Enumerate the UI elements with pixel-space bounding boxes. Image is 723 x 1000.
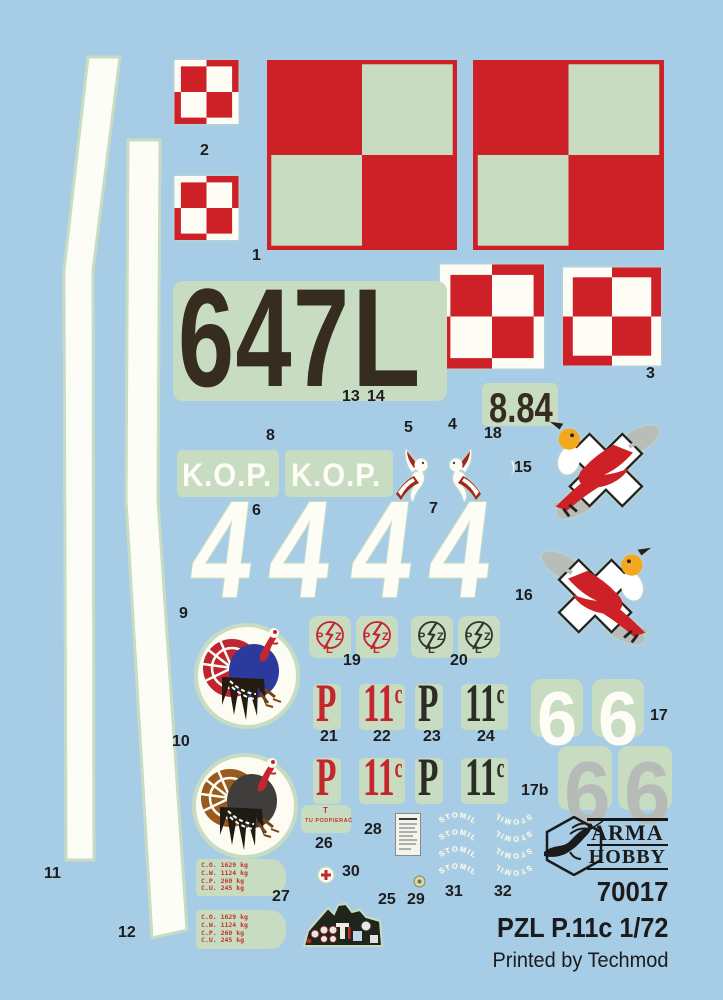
weight-line: C.P. 260 kg [201,877,244,885]
decal-number-label-2: 2 [200,143,209,159]
decal-number-label-22: 22 [373,729,391,745]
small-disc-decal [413,875,426,888]
arma-hobby-wordmark: ARMA HOBBY [587,818,668,870]
decal-number-label-10: 10 [172,734,190,750]
decal-number-label-23: 23 [423,729,441,745]
pzl-logo-red [360,619,394,655]
fuselage-stripe-11 [64,57,120,860]
decal-number-label-13: 13 [342,389,360,405]
turkey-emblem-black-decal [190,750,300,862]
first-aid-cross-decal [317,866,335,884]
instrument-panel-decal [302,901,384,948]
p-decal-red: P [316,750,336,804]
11c-decal-black: 11c [465,676,504,730]
weight-line: C.O. 1629 kg [201,913,248,921]
decal-number-label-3: 3 [646,366,655,382]
11c-decal-red: 11c [363,750,402,804]
decal-number-label-31: 31 [445,884,463,900]
11-text: 11 [465,747,497,807]
checkerboard-medium-decal [440,263,544,370]
p-decal-red: P [316,676,336,730]
checkerboard-small-decal [173,176,240,240]
11c-decal-black: 11c [465,750,504,804]
decal-number-label-24: 24 [477,729,495,745]
stomil-logo-decal [437,810,477,827]
decal-number-label-5: 5 [404,420,413,436]
weight-line: C.U. 245 kg [201,936,244,944]
decal-number-label-6: 6 [252,503,261,519]
decal-number-label-1: 1 [252,248,261,264]
decal-number-label-16: 16 [515,588,533,604]
weight-stencil-decal: C.O. 1629 kgC.W. 1124 kgC.P. 260 kgC.U. … [201,914,248,945]
decal-number-label-18: 18 [484,426,502,442]
support-stencil-decal: TU PODPIERAĆ [305,818,353,824]
stomil-logo-decal [437,861,477,878]
decal-number-label-17b: 17b [521,783,549,799]
decal-number-label-11: 11 [44,866,61,882]
11c-decal-red: 11c [363,676,402,730]
checkerboard-large-decal [472,60,665,250]
decal-number-label-9: 9 [179,606,188,622]
variant-c-text: c [395,753,403,784]
decal-number-label-14: 14 [367,389,385,405]
pzl-logo-black [415,619,449,655]
pzl-logo-red [313,619,347,655]
checkerboard-large-decal [267,60,457,250]
decal-number-label-12: 12 [118,925,136,941]
variant-c-text: c [497,753,505,784]
decal-number-label-17: 17 [650,708,668,724]
cross-eagle-emblem-decal [538,414,668,528]
cross-eagle-emblem-decal [533,540,663,654]
decal-number-label-21: 21 [320,729,338,745]
decal-number-label-26: 26 [315,836,333,852]
11-text: 11 [363,747,395,807]
serial-letter-decal: L [352,268,420,408]
checkerboard-medium-decal [563,263,661,370]
weight-line: C.U. 245 kg [201,884,244,892]
brand-hobby: HOBBY [587,846,668,870]
weight-line: C.P. 260 kg [201,929,244,937]
stomil-logo-decal [437,844,477,861]
pzl-logo-black [462,619,496,655]
decal-number-label-27: 27 [272,889,290,905]
11-text: 11 [363,673,395,733]
weight-line: C.O. 1629 kg [201,861,248,869]
product-code: 70017 [493,876,668,908]
decal-number-label-25: 25 [378,892,396,908]
printer-credit: Printed by Techmod [487,949,668,973]
decal-number-label-15: 15 [514,460,532,476]
p-decal-black: P [418,750,438,804]
variant-c-text: c [395,679,403,710]
turkey-emblem-blue-decal [192,620,302,732]
decal-number-label-20: 20 [450,653,468,669]
serial-647-decal: 647 [178,268,351,408]
stomil-logo-decal [437,827,477,844]
weight-line: C.W. 1124 kg [201,869,248,877]
decal-number-label-8: 8 [266,428,275,444]
decal-number-label-30: 30 [342,864,360,880]
decal-sheet: P Z L STOMIL 647 L 8.84 K.O.P. K.O.P. [0,0,723,1000]
decal-number-label-29: 29 [407,892,425,908]
weight-stencil-decal: C.O. 1629 kgC.W. 1124 kgC.P. 260 kgC.U. … [201,862,248,893]
product-name: PZL P.11c 1/72 [497,912,668,944]
decal-number-label-7: 7 [429,501,438,517]
brand-arma: ARMA [587,818,668,846]
support-mark-decal: T [323,807,328,815]
p-decal-black: P [418,676,438,730]
decal-number-label-19: 19 [343,653,361,669]
variant-c-text: c [497,679,505,710]
decal-number-label-32: 32 [494,884,512,900]
11-text: 11 [465,673,497,733]
decal-number-label-4: 4 [448,417,457,433]
decal-number-label-28: 28 [364,822,382,838]
weight-line: C.W. 1124 kg [201,921,248,929]
data-placard-decal [395,813,421,856]
checkerboard-small-decal [173,60,240,124]
